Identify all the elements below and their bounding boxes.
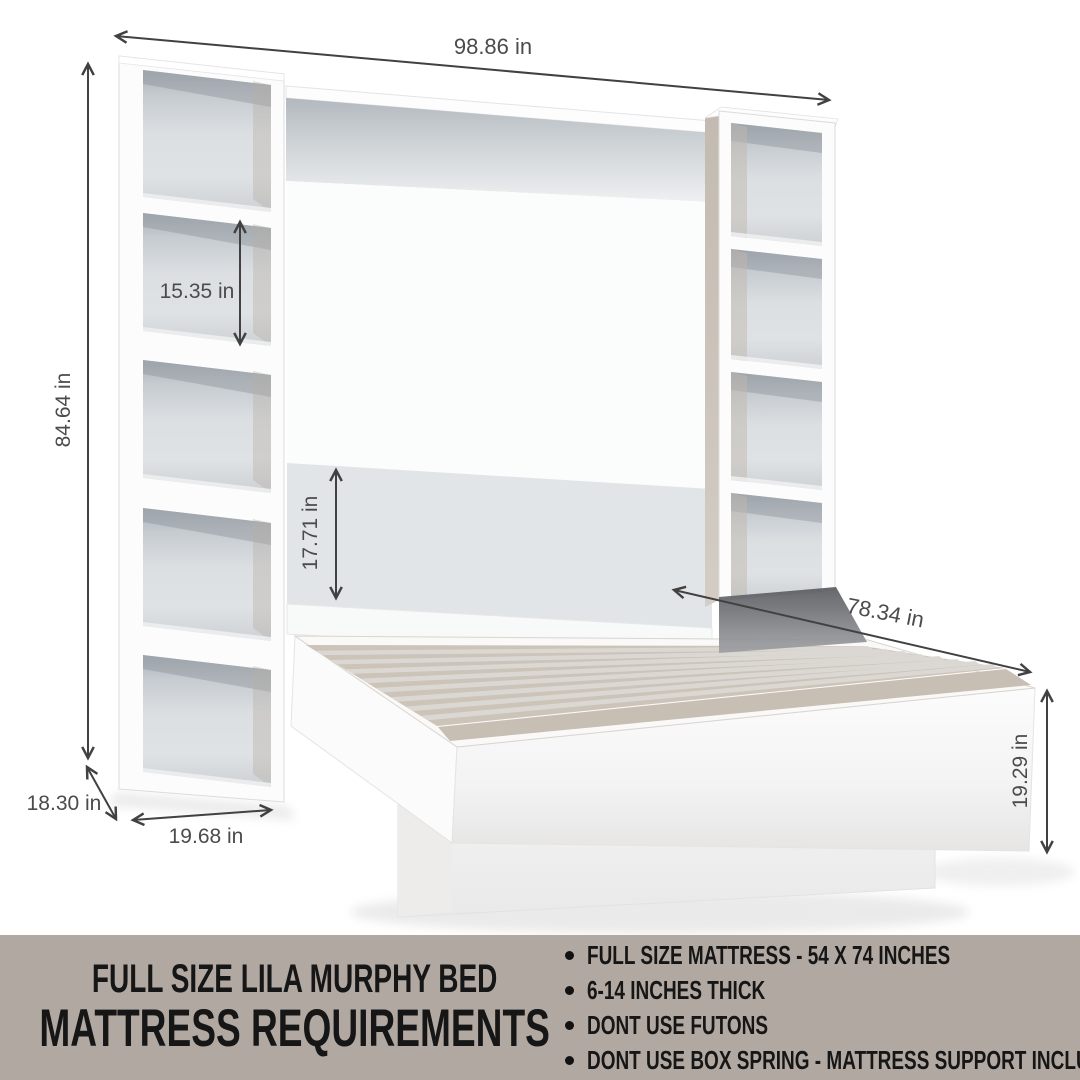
dim-label-shelf-opening: 15.35 in [160,280,235,303]
requirement-text: FULL SIZE MATTRESS - 54 X 74 INCHES [587,940,950,971]
back-panel-lower-band [287,463,712,628]
dim-label-bed-height: 19.29 in [1009,734,1032,809]
requirements-list: FULL SIZE MATTRESS - 54 X 74 INCHES 6-14… [551,936,1059,1080]
bullet-icon [565,951,574,960]
back-panel [287,181,712,658]
dim-label-overall-height: 84.64 in [52,373,75,448]
banner-title-line1: FULL SIZE LILA MURPHY BED [92,958,497,1000]
left-shelf-tower [108,56,296,820]
requirement-item: DONT USE BOX SPRING - MATTRESS SUPPORT I… [565,1045,1049,1076]
right-shelf-tower [705,107,867,653]
left-tower-openings [143,70,271,787]
requirement-item: FULL SIZE MATTRESS - 54 X 74 INCHES [565,940,1049,971]
murphy-bed-infographic: 98.86 in 84.64 in 15.35 in 17.71 in 78.3… [0,0,1080,1080]
murphy-bed-diagram: 98.86 in 84.64 in 15.35 in 17.71 in 78.3… [0,0,1080,935]
bullet-icon [565,1021,574,1030]
dim-label-side-width: 19.68 in [169,825,244,848]
info-banner: FULL SIZE LILA MURPHY BED MATTRESS REQUI… [0,935,1080,1080]
bullet-icon [565,1056,574,1065]
requirement-item: DONT USE FUTONS [565,1010,1049,1041]
requirement-item: 6-14 INCHES THICK [565,975,1049,1006]
requirement-text: DONT USE FUTONS [587,1010,768,1041]
dim-label-overall-width: 98.86 in [454,34,532,59]
banner-title: FULL SIZE LILA MURPHY BED MATTRESS REQUI… [0,958,551,1057]
requirement-text: 6-14 INCHES THICK [587,975,765,1006]
bullet-icon [565,986,574,995]
banner-title-line2: MATTRESS REQUIREMENTS [39,1000,549,1057]
dim-label-side-depth: 18.30 in [27,792,102,815]
requirement-text: DONT USE BOX SPRING - MATTRESS SUPPORT I… [587,1045,1080,1076]
dim-label-panel-height: 17.71 in [299,496,322,571]
right-tower-side-face [705,116,719,607]
under-bed-shadow [719,587,867,653]
